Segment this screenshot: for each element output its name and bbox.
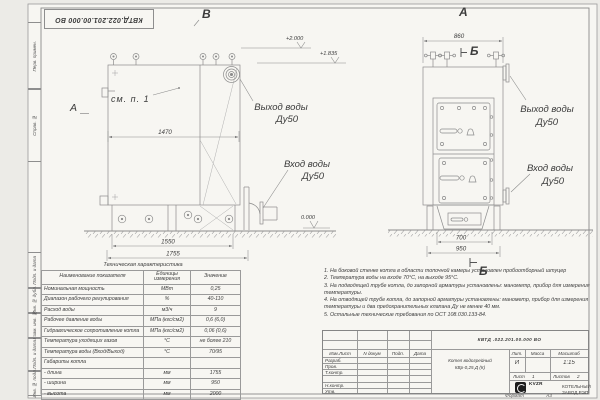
row-value bbox=[191, 358, 241, 369]
dim-950: 950 bbox=[456, 246, 467, 253]
row-name: Номинальная мощность bbox=[42, 284, 144, 295]
row-name: Температура уходящих газов bbox=[42, 337, 144, 348]
scale-value: 1:15 bbox=[550, 360, 588, 366]
header-lit: Лит. bbox=[509, 351, 525, 356]
margin-box-inv-podl: Инв. № подл. bbox=[28, 370, 41, 396]
header-podp: Подп. bbox=[387, 351, 409, 356]
format-value: А3 bbox=[546, 394, 552, 399]
row-name: Расход воды bbox=[42, 305, 144, 316]
margin-label: Взам. инв. № bbox=[32, 311, 37, 339]
row-unit: % bbox=[144, 295, 191, 306]
header-scale: Масштаб bbox=[550, 351, 588, 356]
row-value: 9 bbox=[191, 305, 241, 316]
row-tkontr: Т.контр. bbox=[325, 370, 357, 375]
kvzr-logo-icon bbox=[515, 382, 526, 393]
elevation-2000: +2.000 bbox=[286, 36, 304, 42]
outlet-flange-side bbox=[224, 67, 240, 83]
product-name-line2: КВр-0,25 Д (К) bbox=[432, 365, 508, 372]
row-name: Диапазон рабочего регулирования bbox=[42, 295, 144, 306]
row-value: 0,25 bbox=[191, 284, 241, 295]
col-header-name: Наименование показателя bbox=[42, 271, 144, 285]
outlet-dn-front: Ду50 bbox=[535, 117, 559, 128]
margin-box-podp-data-2: Подп. и дата bbox=[28, 337, 41, 372]
section-b-top-label: Б bbox=[470, 44, 479, 58]
margin-box-podp-data-1: Подп. и дата bbox=[28, 252, 41, 289]
dim-1550: 1550 bbox=[161, 239, 175, 246]
margin-box-sprav-no: Справ. № bbox=[28, 88, 41, 162]
product-name-line1: Котел водогрейный bbox=[432, 358, 508, 365]
row-unit: МВт bbox=[144, 284, 191, 295]
row-name: - длина bbox=[42, 368, 144, 379]
note-item: 4. На отводящей трубе котла, до запорной… bbox=[324, 297, 592, 311]
row-value: не более 210 bbox=[191, 337, 241, 348]
note-item: 1. На боковой стенке котла в области топ… bbox=[324, 268, 592, 275]
elevation-1835: +1.835 bbox=[320, 51, 338, 57]
tech-table: Наименование показателя Единицы измерени… bbox=[41, 270, 241, 400]
margin-box-perv-primen: Перв. примен. bbox=[28, 22, 41, 90]
row-unit bbox=[144, 358, 191, 369]
margin-label: Подп. и дата bbox=[32, 340, 37, 369]
note-item: 3. На подводящей трубе котла, до запорно… bbox=[324, 283, 592, 297]
margin-label: Справ. № bbox=[32, 115, 37, 136]
row-value: 950 bbox=[191, 379, 241, 390]
row-unit: м3/ч bbox=[144, 305, 191, 316]
row-razrab: Разраб. bbox=[325, 358, 357, 363]
table-row: - ширинамм950 bbox=[42, 379, 241, 390]
dim-1755: 1755 bbox=[166, 251, 180, 258]
table-row: - длинамм1755 bbox=[42, 368, 241, 379]
dim-700: 700 bbox=[456, 235, 467, 242]
table-row: - высотамм2000 bbox=[42, 389, 241, 400]
row-name: Температура воды (Вход/Выход) bbox=[42, 347, 144, 358]
sheets-label: Листов bbox=[553, 374, 570, 379]
notes-block: 1. На боковой стенке котла в области топ… bbox=[324, 268, 592, 319]
dim-1470: 1470 bbox=[158, 129, 172, 136]
header-izm-list: Изм.Лист bbox=[323, 351, 357, 356]
row-unit: мм bbox=[144, 389, 191, 400]
table-row: Диапазон рабочего регулирования%40-110 bbox=[42, 295, 241, 306]
margin-label: Подп. и дата bbox=[32, 256, 37, 285]
inlet-dn-side: Ду50 bbox=[301, 171, 325, 182]
note-item: 5. Остальные технические требования по О… bbox=[324, 312, 592, 319]
table-row: Температура уходящих газов°Сне более 210 bbox=[42, 337, 241, 348]
sheet-label: Лист bbox=[513, 374, 525, 379]
row-name: Рабочее давление воды bbox=[42, 316, 144, 327]
view-b-label: В bbox=[202, 7, 211, 21]
row-value: 70/95 bbox=[191, 347, 241, 358]
title-block: КВТД .022.201.00.000 ВО Изм.Лист N докум… bbox=[322, 330, 589, 394]
section-a-label: А bbox=[69, 102, 77, 114]
row-nkontr: Н.контр. bbox=[325, 383, 357, 388]
outlet-label-front: Выход воды bbox=[520, 104, 573, 115]
note-item: 2. Температура воды на входе 70°С, на вы… bbox=[324, 275, 592, 282]
margin-label: Перв. примен. bbox=[32, 41, 37, 72]
row-value: 40-110 bbox=[191, 295, 241, 306]
doc-number-rotated: КВТД.022.201.00.000 ВО bbox=[55, 16, 143, 23]
sheets-value: 2 bbox=[577, 374, 580, 379]
format-note: ФорматА3 bbox=[505, 394, 595, 399]
col-header-value: Значение bbox=[191, 271, 241, 285]
lit-value: И bbox=[509, 360, 525, 366]
row-unit: мм bbox=[144, 379, 191, 390]
row-prov: Пров. bbox=[325, 364, 357, 369]
row-name: Габариты котла bbox=[42, 358, 144, 369]
tech-table-header-row: Наименование показателя Единицы измерени… bbox=[42, 271, 241, 285]
ground-line-left bbox=[84, 231, 336, 238]
row-utv: Утв. bbox=[325, 389, 357, 394]
row-unit: МПа (кгс/см2) bbox=[144, 326, 191, 337]
inlet-label-front: Вход воды bbox=[527, 163, 573, 174]
table-row: Гидравлическое сопротивление котлаМПа (к… bbox=[42, 326, 241, 337]
ground-line-right bbox=[388, 230, 593, 237]
row-unit: мм bbox=[144, 368, 191, 379]
row-unit: МПа (кгс/см2) bbox=[144, 316, 191, 327]
row-name: - высота bbox=[42, 389, 144, 400]
header-massa: Масса bbox=[525, 351, 550, 356]
row-unit: °С bbox=[144, 347, 191, 358]
margin-label: Инв. № подл. bbox=[32, 369, 37, 398]
margin-box-inv-dubl: Инв. № дубл. bbox=[28, 287, 41, 314]
kvzr-logo-text: KVZR bbox=[529, 381, 543, 386]
outlet-dn-side: Ду50 bbox=[275, 114, 299, 125]
doc-number-box: КВТД.022.201.00.000 ВО bbox=[44, 9, 154, 29]
col-header-units: Единицы измерения bbox=[144, 271, 191, 285]
tech-table-title: Техническая характеристика bbox=[58, 262, 228, 268]
row-name: Гидравлическое сопротивление котла bbox=[42, 326, 144, 337]
row-value: 0,6 (6,0) bbox=[191, 316, 241, 327]
table-row: Номинальная мощностьМВт0,25 bbox=[42, 284, 241, 295]
table-row: Рабочее давление водыМПа (кгс/см2)0,6 (6… bbox=[42, 316, 241, 327]
logo-sub-line1: КОТЕЛЬНЫЙ bbox=[562, 384, 591, 390]
table-row: Габариты котла bbox=[42, 358, 241, 369]
dim-860: 860 bbox=[454, 33, 465, 40]
outlet-label-side: Выход воды bbox=[254, 102, 307, 113]
view-a-label: А bbox=[458, 5, 468, 19]
row-value: 1755 bbox=[191, 368, 241, 379]
header-ndoc: N докум bbox=[357, 351, 387, 356]
row-unit: °С bbox=[144, 337, 191, 348]
elevation-0000: 0.000 bbox=[301, 215, 316, 221]
inlet-label-side: Вход воды bbox=[284, 159, 330, 170]
table-row: Расход водым3/ч9 bbox=[42, 305, 241, 316]
row-value: 2000 bbox=[191, 389, 241, 400]
product-name: Котел водогрейный КВр-0,25 Д (К) bbox=[432, 358, 508, 371]
format-label: Формат bbox=[505, 394, 524, 399]
table-row: Температура воды (Вход/Выход)°С70/95 bbox=[42, 347, 241, 358]
drawing-sheet: 1470 1550 1755 +2.000 +1.835 0.000 В А с… bbox=[0, 0, 600, 400]
title-block-designation: КВТД .022.201.00.000 ВО bbox=[431, 332, 588, 348]
sheet-value: 1 bbox=[532, 374, 535, 379]
see-note-text: см. п. 1 bbox=[111, 94, 150, 104]
margin-box-vzam-inv: Взам. инв. № bbox=[28, 312, 41, 339]
row-name: - ширина bbox=[42, 379, 144, 390]
inlet-dn-front: Ду50 bbox=[541, 176, 565, 187]
header-data: Дата bbox=[409, 351, 431, 356]
row-value: 0,06 (0,6) bbox=[191, 326, 241, 337]
